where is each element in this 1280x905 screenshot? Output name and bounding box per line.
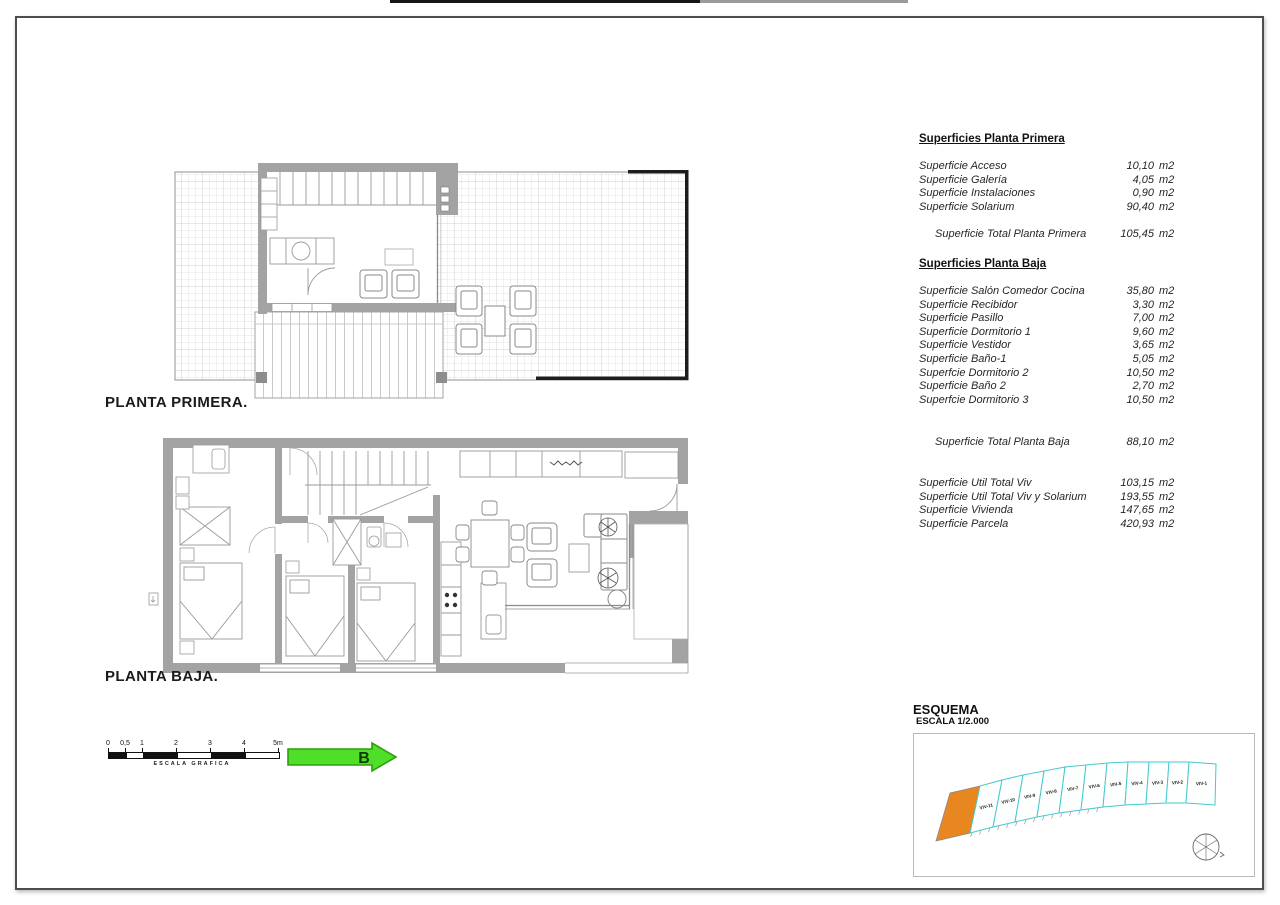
scale-segment [109,753,126,758]
road-hatch [1097,808,1099,812]
area-value: 3,65 [1110,339,1154,353]
nightstand [286,561,299,573]
site-plan: VIV-11VIV-10VIV-9VIV-8VIV-7VIV-6VIV-5VIV… [914,734,1254,876]
highlighted-parcel [936,786,980,841]
column-marker [256,372,267,383]
left-wall-marker [149,593,158,605]
parcel-label: VIV-1 [1196,781,1208,787]
area-value: 4,05 [1110,174,1154,188]
area-row: Superficie Baño-15,05m2 [919,353,1177,367]
area-row: Superficie Util Total Viv103,15m2 [919,477,1177,491]
nightstand [357,568,370,580]
parapet-edge [685,170,689,380]
scale-segment [126,753,143,758]
area-label: Superficie Vivienda [919,504,1110,518]
scale-tick: 0,5 [120,740,130,747]
area-unit: m2 [1159,504,1177,518]
road-hatch [971,833,973,837]
area-value: 35,80 [1110,285,1154,299]
parapet-edge [628,170,688,174]
total-planta-baja: Superficie Total Planta Baja 88,10 m2 [919,436,1177,450]
area-row: Superficie Galería4,05m2 [919,174,1177,188]
scale-segment [177,753,211,758]
nightstand [180,641,194,654]
road-hatch [1034,818,1036,822]
area-unit: m2 [1159,353,1177,367]
scale-tick: 5m [273,740,283,747]
areas-table-planta-primera: Superficies Planta Primera [919,133,1177,145]
area-value: 10,50 [1110,367,1154,381]
bed [357,583,415,661]
area-unit: m2 [1159,312,1177,326]
area-label: Superficie Dormitorio 1 [919,326,1110,340]
outdoor-table [485,306,505,336]
total-value: 88,10 [1110,436,1154,450]
first-floor-plan [160,160,705,405]
sink [386,533,401,547]
table-title: Superficies Planta Primera [919,133,1177,145]
area-row: Superfcie Dormitorio 210,50m2 [919,367,1177,381]
first-floor-label: PLANTA PRIMERA. [105,394,248,411]
area-unit: m2 [1159,394,1177,408]
road-hatch [1088,809,1090,813]
vestidor-wardrobe [180,507,230,545]
area-label: Superficie Galería [919,174,1110,188]
area-value: 103,15 [1110,477,1154,491]
area-unit: m2 [1159,187,1177,201]
areas-rows-summary: Superficie Util Total Viv103,15m2Superfi… [919,477,1177,531]
area-unit: m2 [1159,299,1177,313]
road-hatch [980,831,982,835]
area-row: Superficie Dormitorio 19,60m2 [919,326,1177,340]
column-marker [436,372,447,383]
road-hatch [998,826,1000,830]
bed [286,576,344,656]
ground-floor-plan [160,435,705,680]
area-label: Superficie Util Total Viv y Solarium [919,491,1110,505]
road-hatch [1043,816,1045,820]
area-row: Superficie Pasillo7,00m2 [919,312,1177,326]
total-unit: m2 [1159,228,1177,242]
area-label: Superficie Acceso [919,160,1110,174]
area-unit: m2 [1159,285,1177,299]
compass-icon [1193,834,1224,860]
scale-tick: 4 [242,740,246,747]
screen-edge-artifact [700,0,908,3]
bench [272,304,332,312]
area-unit: m2 [1159,174,1177,188]
area-value: 9,60 [1110,326,1154,340]
total-label: Superficie Total Planta Primera [919,228,1110,242]
area-label: Superficie Salón Comedor Cocina [919,285,1110,299]
road-hatch [1007,824,1009,828]
area-value: 193,55 [1110,491,1154,505]
deck-area [255,312,443,398]
area-label: Superfcie Dormitorio 2 [919,367,1110,381]
armchair [392,270,419,298]
area-row: Superficie Util Total Viv y Solarium193,… [919,491,1177,505]
scale-segment [245,753,279,758]
scale-tick: 2 [174,740,178,747]
road-hatch [1025,820,1027,824]
area-unit: m2 [1159,326,1177,340]
area-row: Superficie Acceso10,10m2 [919,160,1177,174]
area-label: Superficie Baño-1 [919,353,1110,367]
kitchen-island [481,583,506,639]
area-unit: m2 [1159,518,1177,532]
area-label: Superficie Instalaciones [919,187,1110,201]
scale-segment [211,753,245,758]
area-row: Superficie Salón Comedor Cocina35,80m2 [919,285,1177,299]
scale-bar [108,752,280,759]
area-unit: m2 [1159,380,1177,394]
areas-table-planta-baja: Superficies Planta Baja [919,258,1177,270]
esquema-subtitle: ESCALA 1/2.000 [916,716,989,727]
area-row: Superficie Baño 22,70m2 [919,380,1177,394]
areas-rows-planta-baja: Superficie Salón Comedor Cocina35,80m2Su… [919,285,1177,407]
esquema-box: VIV-11VIV-10VIV-9VIV-8VIV-7VIV-6VIV-5VIV… [913,733,1255,877]
area-value: 10,50 [1110,394,1154,408]
area-unit: m2 [1159,160,1177,174]
area-label: Superficie Parcela [919,518,1110,532]
total-label: Superficie Total Planta Baja [919,436,1110,450]
area-value: 7,00 [1110,312,1154,326]
area-value: 0,90 [1110,187,1154,201]
road-hatch [1079,811,1081,815]
area-label: Superficie Solarium [919,201,1110,215]
total-value: 105,45 [1110,228,1154,242]
area-label: Superficie Recibidor [919,299,1110,313]
table-title: Superficies Planta Baja [919,258,1177,270]
ground-floor-label: PLANTA BAJA. [105,668,218,685]
area-row: Superficie Recibidor3,30m2 [919,299,1177,313]
area-unit: m2 [1159,477,1177,491]
scale-tick: 3 [208,740,212,747]
nightstand [180,548,194,561]
total-unit: m2 [1159,436,1177,450]
bed [180,563,242,639]
road-hatch [989,828,991,832]
arrow-label: B [358,750,370,767]
area-unit: m2 [1159,367,1177,381]
road-hatch [1061,813,1063,817]
area-value: 420,93 [1110,518,1154,532]
toilet [367,527,381,547]
area-unit: m2 [1159,201,1177,215]
area-row: Superficie Solarium90,40m2 [919,201,1177,215]
area-value: 147,65 [1110,504,1154,518]
plot-parcels: VIV-11VIV-10VIV-9VIV-8VIV-7VIV-6VIV-5VIV… [936,762,1216,841]
area-value: 10,10 [1110,160,1154,174]
armchair [360,270,387,298]
area-unit: m2 [1159,491,1177,505]
area-label: Superfcie Dormitorio 3 [919,394,1110,408]
screen-edge-artifact [390,0,700,3]
area-label: Superficie Pasillo [919,312,1110,326]
area-row: Superficie Parcela420,93m2 [919,518,1177,532]
scale-segment [143,753,177,758]
scale-tick: 1 [140,740,144,747]
arrow-shape [288,743,396,771]
scale-caption: ESCALA GRAFICA [122,761,262,767]
area-label: Superficie Baño 2 [919,380,1110,394]
graphic-scale: 00,512345m ESCALA GRAFICA [108,740,280,772]
coffee-table [569,544,589,572]
area-value: 90,40 [1110,201,1154,215]
parapet-edge [536,377,689,381]
shower [333,519,361,565]
area-row: Superficie Instalaciones0,90m2 [919,187,1177,201]
road-hatch [1052,815,1054,819]
closet [261,178,277,230]
area-row: Superficie Vivienda147,65m2 [919,504,1177,518]
kitchenette [270,238,334,264]
scale-tick: 0 [106,740,110,747]
road-hatch [1016,822,1018,826]
total-planta-primera: Superficie Total Planta Primera 105,45 m… [919,228,1177,242]
area-unit: m2 [1159,339,1177,353]
area-label: Superficie Util Total Viv [919,477,1110,491]
terrace [634,524,688,639]
area-value: 3,30 [1110,299,1154,313]
areas-rows-planta-primera: Superficie Acceso10,10m2Superficie Galer… [919,160,1177,214]
esquema-title: ESQUEMA [913,702,979,717]
area-row: Superfcie Dormitorio 310,50m2 [919,394,1177,408]
area-value: 2,70 [1110,380,1154,394]
road-hatch [1070,812,1072,816]
area-value: 5,05 [1110,353,1154,367]
area-label: Superficie Vestidor [919,339,1110,353]
direction-arrow: B [287,741,399,773]
area-row: Superficie Vestidor3,65m2 [919,339,1177,353]
parcel-label: VIV-2 [1172,779,1184,785]
